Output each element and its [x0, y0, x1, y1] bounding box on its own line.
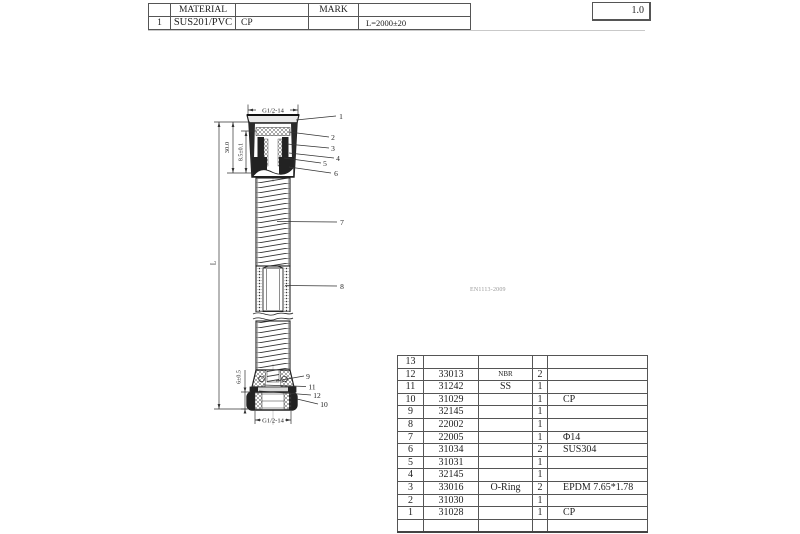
- part-name: [479, 519, 533, 532]
- inner-tube: [263, 268, 283, 311]
- part-remark: [548, 494, 648, 507]
- dim-hose-length: L: [209, 260, 218, 265]
- part-code: 32145: [424, 469, 479, 482]
- part-remark: [548, 381, 648, 394]
- bottom-connector: [247, 370, 297, 410]
- parts-table: 13 1233013NBR2 1131242SS1 10310291CP 932…: [397, 355, 648, 533]
- part-qty: 1: [533, 381, 548, 394]
- table-row: 10310291CP: [398, 393, 648, 406]
- callout-2: 2: [331, 133, 335, 142]
- part-code: 31030: [424, 494, 479, 507]
- table-row: 6310342SUS304: [398, 444, 648, 457]
- table-row: 1131242SS1: [398, 381, 648, 394]
- part-no: 3: [398, 481, 424, 494]
- table-row: 8220021: [398, 418, 648, 431]
- mark-value: [309, 17, 359, 30]
- callout-10: 10: [320, 400, 328, 409]
- table-row: 1233013NBR2: [398, 368, 648, 381]
- callout-1: 1: [339, 112, 343, 121]
- material-header: MATERIAL: [171, 4, 236, 17]
- part-code: 22002: [424, 418, 479, 431]
- part-no: 6: [398, 444, 424, 457]
- hose-cutaway-section: [256, 266, 290, 314]
- part-code: 33016: [424, 481, 479, 494]
- part-qty: 1: [533, 431, 548, 444]
- finish-value: CP: [236, 17, 309, 30]
- material-value: SUS201/PVC: [171, 17, 236, 30]
- part-no: 11: [398, 381, 424, 394]
- callout-6: 6: [334, 169, 338, 178]
- length-spec: L=2000±20: [359, 17, 471, 30]
- part-name: [479, 494, 533, 507]
- part-qty: 2: [533, 481, 548, 494]
- part-qty: 1: [533, 507, 548, 520]
- callout-4: 4: [336, 154, 340, 163]
- title-block-value-row: 1 SUS201/PVC CP L=2000±20: [149, 17, 471, 30]
- part-no: 7: [398, 431, 424, 444]
- part-code: 22005: [424, 431, 479, 444]
- part-remark: [548, 418, 648, 431]
- part-qty: 1: [533, 393, 548, 406]
- title-block-cell: [359, 4, 471, 17]
- hose-lower-section: [256, 321, 290, 370]
- table-row: 4321451: [398, 469, 648, 482]
- part-qty: [533, 519, 548, 532]
- scale-box: 1.0: [592, 2, 651, 21]
- table-row: 1310281CP: [398, 507, 648, 520]
- engineering-drawing-sheet: { "header_table": { "material_header": "…: [0, 0, 800, 534]
- item-no: 1: [149, 17, 171, 30]
- callout-8: 8: [340, 282, 344, 291]
- hose-break-lines: [251, 312, 295, 320]
- part-code: [424, 356, 479, 369]
- callout-3: 3: [331, 144, 335, 153]
- part-qty: 1: [533, 418, 548, 431]
- callout-9: 9: [306, 372, 310, 381]
- part-name: O-Ring: [479, 481, 533, 494]
- part-name: [479, 456, 533, 469]
- hose-upper-section: [256, 178, 290, 266]
- part-no: 4: [398, 469, 424, 482]
- part-remark: [548, 406, 648, 419]
- table-row: [398, 519, 648, 532]
- part-no: [398, 519, 424, 532]
- part-remark: [548, 469, 648, 482]
- part-code: 31034: [424, 444, 479, 457]
- callout-7: 7: [340, 218, 344, 227]
- part-qty: 1: [533, 406, 548, 419]
- title-block-header-row: MATERIAL MARK: [149, 4, 471, 17]
- top-cap: [247, 115, 299, 123]
- part-name: [479, 431, 533, 444]
- callout-12: 12: [313, 391, 321, 400]
- part-qty: 2: [533, 444, 548, 457]
- part-remark: CP: [548, 393, 648, 406]
- part-remark: [548, 368, 648, 381]
- table-row: 333016O-Ring2EPDM 7.65*1.78: [398, 481, 648, 494]
- part-no: 12: [398, 368, 424, 381]
- part-name: SS: [479, 381, 533, 394]
- part-no: 5: [398, 456, 424, 469]
- dim-bottom-thread: G1/2-14: [262, 417, 284, 424]
- hose-assembly-drawing: G1/2-14 L 30.0 8.5±0.1 6±0.5 G1/2-14 1 2…: [200, 95, 365, 430]
- part-name: [479, 469, 533, 482]
- part-qty: 2: [533, 368, 548, 381]
- part-qty: 1: [533, 494, 548, 507]
- part-name: [479, 356, 533, 369]
- table-row: 7220051Φ14: [398, 431, 648, 444]
- table-row: 9321451: [398, 406, 648, 419]
- part-name: [479, 406, 533, 419]
- part-name: [479, 393, 533, 406]
- part-remark: SUS304: [548, 444, 648, 457]
- gasket-section: [256, 128, 290, 136]
- part-code: 32145: [424, 406, 479, 419]
- part-remark: [548, 456, 648, 469]
- callout-5: 5: [323, 159, 327, 168]
- part-no: 8: [398, 418, 424, 431]
- part-name: NBR: [479, 368, 533, 381]
- part-qty: 1: [533, 469, 548, 482]
- part-remark: EPDM 7.65*1.78: [548, 481, 648, 494]
- part-remark: Φ14: [548, 431, 648, 444]
- seal-washer-left: [259, 376, 265, 382]
- part-no: 9: [398, 406, 424, 419]
- dim-nut-height: 6±0.5: [237, 370, 243, 384]
- title-block-cell: [236, 4, 309, 17]
- part-qty: [533, 356, 548, 369]
- table-row: 13: [398, 356, 648, 369]
- part-code: 31029: [424, 393, 479, 406]
- callout-numbers: 1 2 3 4 5 6 7 8 9 10 11 12: [306, 112, 344, 409]
- top-connector: [247, 115, 299, 177]
- frame-line: [148, 30, 645, 31]
- part-remark: [548, 519, 648, 532]
- dim-connector-height: 30.0: [224, 142, 231, 153]
- part-no: 1: [398, 507, 424, 520]
- dim-cone-depth: 8.5±0.1: [239, 143, 245, 161]
- part-no: 13: [398, 356, 424, 369]
- mark-header: MARK: [309, 4, 359, 17]
- part-remark: [548, 356, 648, 369]
- part-code: 31031: [424, 456, 479, 469]
- table-row: 5310311: [398, 456, 648, 469]
- part-name: [479, 444, 533, 457]
- standard-note: EN1113-2009: [470, 287, 506, 293]
- part-no: 2: [398, 494, 424, 507]
- part-name: [479, 507, 533, 520]
- part-code: 31028: [424, 507, 479, 520]
- part-code: 31242: [424, 381, 479, 394]
- part-no: 10: [398, 393, 424, 406]
- dim-top-thread: G1/2-14: [262, 107, 284, 114]
- title-block-table: MATERIAL MARK 1 SUS201/PVC CP L=2000±20: [148, 3, 471, 30]
- table-row: 2310301: [398, 494, 648, 507]
- part-qty: 1: [533, 456, 548, 469]
- part-remark: CP: [548, 507, 648, 520]
- part-name: [479, 418, 533, 431]
- title-block-cell: [149, 4, 171, 17]
- part-code: 33013: [424, 368, 479, 381]
- part-code: [424, 519, 479, 532]
